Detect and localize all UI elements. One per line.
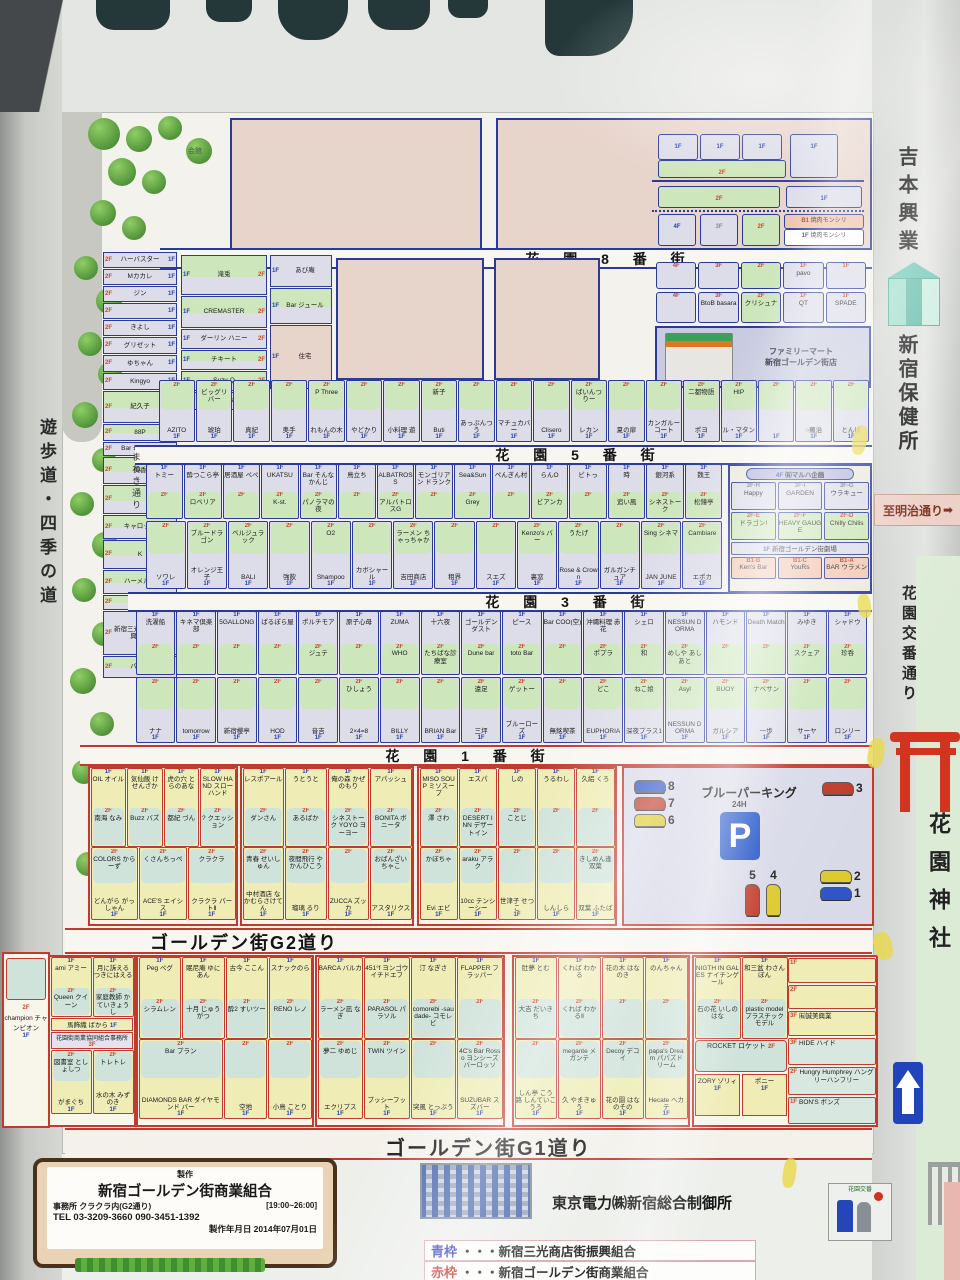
car-icon: 2	[820, 869, 861, 883]
shop-cell: 1FPeg ペグ 2Fシラムレン	[139, 957, 182, 1039]
shop-cell: 1Fエポカ 2FCambiare	[682, 521, 722, 589]
health-center-label: 新宿保健所	[892, 334, 921, 454]
shop-cell: 1Fのんちゃん 2F	[645, 957, 688, 1039]
shop-cell: 2Fグリゼット1F	[103, 337, 177, 354]
shop-cell: 1FZUCCA ズッカ 2F	[328, 847, 370, 920]
shop-cell: 1F瑠璃 るり 2F夜間飛行 やかんひこう	[285, 847, 327, 920]
shop-cell: 1F鳥立ち 2F	[338, 464, 376, 519]
shop-cell: 1F久絽 くろ 2F	[576, 768, 614, 847]
theater-3f-row: 3F-HHappy3F-IGARDEN3F-Gウラキュー	[730, 482, 870, 510]
shop-cell: 1F音吉 2F	[298, 677, 338, 743]
shop-cell: 3F-IGARDEN	[778, 482, 823, 510]
g2b-row1: 1FPeg ペグ 2Fシラムレン 1F眠尼庵 ゆにあん 2F十月 じゅうがつ 1…	[138, 957, 312, 1039]
g2b-row2: 1FDIAMONDS BAR ダイヤモンド バー 2FBar プラン 1F空地 …	[138, 1039, 312, 1119]
g2-block-a: 1Fami アミー 2FQueen クイーン 1F月に訴える つきにはえる 2F…	[48, 955, 136, 1127]
shop-cell: 1F無銘喫茶 2F	[543, 677, 583, 743]
shop-cell: 1F○羅治 2F	[795, 380, 831, 442]
shop-cell: 1Fサーヤ 2F	[787, 677, 827, 743]
shop-cell: 1F滝兎2F	[181, 255, 267, 295]
street-hanazono1-label: 花 園 1 番 街	[330, 746, 610, 766]
shop-cell: 1F一歩 2Fナベサン	[746, 677, 786, 743]
shop-cell: 1Fがまぐち 2F図書室 としょしつ	[51, 1050, 92, 1114]
one-way-arrow-sign	[893, 1062, 923, 1124]
familymart-branch: 新宿ゴールデン街店	[733, 357, 869, 368]
shop-cell: 1Fカボシャール 2F	[352, 521, 392, 589]
shop-cell: 1Fれもんの木 2FP Three	[308, 380, 344, 442]
block1a-row2: 1Fどんがら がっしゃん 2FCOLORS からーず 1FACE'S エイシス …	[90, 847, 236, 920]
bakara-cell: 馬飾織 ばから 1F	[51, 1018, 133, 1031]
legend-row: 青枠・・・新宿三光商店街振興組合	[424, 1240, 756, 1261]
block8-building	[336, 258, 484, 380]
block1b: 1Fレスポアール 2Fダンさん 1Fうとうと 2Fあるばか 1F俺の森 かぜのも…	[240, 766, 414, 926]
familymart-store-icon	[665, 333, 733, 382]
shop-cell: 1FDIAMONDS BAR ダイヤモンド バー 2FBar プラン	[139, 1039, 224, 1119]
maker-date: 製作年月日 2014年07月01日	[53, 1223, 317, 1235]
shop-cell: 1Fアスタリクス 2Fおばんざい ちゃこ	[370, 847, 412, 920]
shop-cell: 1Fスナックのら 2FRENO レノ	[269, 957, 312, 1039]
shop-cell: 1FBILLY 2F	[380, 677, 420, 743]
maruha-cell: 4F ㈲マルハ企画	[746, 468, 854, 480]
shop-cell: 3FBtoB basara	[698, 292, 738, 323]
shop-cell: 3F	[698, 262, 738, 289]
g2-block-c: 1FBARCA バルカ 2Fラーメン凪 なぎ 1F451°f ヨンゴウイチドエフ…	[315, 955, 505, 1127]
shop-cell: 1FHOD 2F	[258, 677, 298, 743]
shop-cell: 1F汀 なぎさ 2Fcomorebi -saudade- コモレビ	[411, 957, 457, 1039]
shop-cell: 1FBar ジュール	[270, 288, 332, 324]
shop-cell: 2Fクリシュナ	[741, 292, 781, 323]
street-g2-label: ゴールデン街G2道り	[150, 929, 338, 955]
shop-cell: 1FBARCA バルカ 2Fラーメン凪 なぎ	[318, 957, 364, 1039]
shop-cell: 1F銀河系 2Fシネストーク	[646, 464, 684, 519]
shop-cell: 1FOIL オイル 2F南海 なみ	[91, 768, 127, 847]
familymart-block: ファミリーマート 新宿ゴールデン街店	[655, 326, 871, 388]
shop-cell: 1FQT	[783, 292, 823, 323]
shop-cell: 1F突風 とっぷう 2F	[411, 1039, 457, 1119]
shop-cell: 1FRose & Crown 2Fうたげ	[558, 521, 598, 589]
shop-cell: 1F奥手 2F	[271, 380, 307, 442]
shop-cell: 1Fあっぷんつう 2F	[458, 380, 494, 442]
shop-cell: 2F-DChilly Chilis	[824, 512, 869, 540]
shop-cell: 1FSUZUBAR スズバー 2F4C's Bar Rosso ヨンシーズバーロ…	[457, 1039, 503, 1119]
shop-cell: 1F気仙飯 けせんざか 2FBuzz バズ	[127, 768, 163, 847]
shop-cell: 1Fダーリン ハニー2F	[181, 329, 267, 349]
shop-cell: 1Ftomorrow 2F	[176, 677, 216, 743]
shop-cell: 1Fキネマ倶楽部 2F	[176, 611, 216, 675]
signboard-logo-fragment	[96, 0, 170, 30]
block3-row1: 1F洗濯船 2F 1Fキネマ倶楽部 2F 1F5GALLONG 2F 1Fぱるぽ…	[135, 611, 868, 675]
shop-cell: 1F居酒屋 ペペ 2F	[223, 464, 261, 519]
shop-cell: 1Fスエズ 2F	[476, 521, 516, 589]
shop-cell: 3F㈲誠美興業	[788, 1011, 876, 1036]
shop-cell: 2F	[788, 985, 876, 1010]
g2-block-e: 1FNIGTH IN GALES ナイチンゲール 2F石の花 いしのはな 1F和…	[692, 955, 878, 1127]
maker-tel: TEL 03-3209-3660 090-3451-1392	[53, 1212, 317, 1223]
shop-cell: 1F5GALLONG 2F	[217, 611, 257, 675]
shop-cell: 1Fエクリプス 2F夢二 ゆめじ	[318, 1039, 364, 1119]
shop-cell: 1FSPADE	[826, 292, 866, 323]
street-hanazono5-label: 花 園 5 番 街	[400, 445, 760, 465]
street-hanazono3-label: 花 園 3 番 街	[390, 592, 750, 612]
shop-cell: 1Fあび庵	[270, 255, 332, 287]
block5-row1: 1Fトミー 2F 1F酔つこら亭 2Fロベリア 1F居酒屋 ペペ 2F 1FUK…	[145, 464, 723, 519]
shop-cell: 1FZUMA 2FWHO	[380, 611, 420, 675]
car-icon: 1	[820, 886, 861, 900]
shop-cell: 1Fガルガンチュア 2F	[600, 521, 640, 589]
maker-title: 製作	[53, 1169, 317, 1180]
shop-cell: 1F琥珀 2Fビッグリバー	[196, 380, 232, 442]
shop-cell: 1Fマチュカバー 2F	[496, 380, 532, 442]
shop-cell: 1F三坪 2F遠足	[461, 677, 501, 743]
to-meiji-dori-label: 至明治通り➡	[874, 494, 960, 526]
shop-cell: 1F沖縄料理 赤花 2Fポプラ	[583, 611, 623, 675]
shop-cell: 1F月に訴える つきにはえる 2F家庭教師 かていきょうし	[93, 957, 134, 1017]
shop-cell: 1Fみゆき 2Fスクェア	[787, 611, 827, 675]
alley-gap	[480, 118, 498, 248]
shop-cell: 3F-Gウラキュー	[824, 482, 869, 510]
shop-cell: 1FAZITO 2F	[159, 380, 195, 442]
shrine-label: 花園神社	[922, 812, 954, 964]
shop-cell: 1F	[788, 958, 876, 983]
torii-icon	[890, 732, 960, 812]
legend-row: 赤枠・・・新宿ゴールデン街商業組合	[424, 1261, 756, 1280]
row-north-of-5: 1FAZITO 2F 1F琥珀 2Fビッグリバー 1F真紀 2F 1F奥手 2F…	[158, 380, 870, 442]
shop-cell: 1Fゴールデンダスト 2FDune bar	[461, 611, 501, 675]
g2-edge-column: 2Fchampion チャンピオン1F	[2, 952, 50, 1128]
koban-lamp-icon	[874, 1192, 883, 1201]
shop-cell: 1FBRIAN Bar 2F	[421, 677, 461, 743]
shop-cell: 1F眠尼庵 ゆにあん 2F十月 じゅうがつ	[182, 957, 225, 1039]
g2c-row2: 1Fエクリプス 2F夢二 ゆめじ 1Fプッシーフット 2FTWIN ツイン 1F…	[317, 1039, 503, 1119]
legend: 青枠・・・新宿三光商店街振興組合 赤枠・・・新宿ゴールデン街商業組合	[424, 1240, 756, 1280]
shop-cell: 1F原子心母 2F	[339, 611, 379, 675]
g2d-row2: 1Fしん亭 こう路 しんていこうろ 2F 1F久 やまきゅう 2Fmegante…	[514, 1039, 688, 1119]
block1a-row1: 1FOIL オイル 2F南海 なみ 1F気仙飯 けせんざか 2FBuzz バズ …	[90, 768, 236, 847]
tepco-building-icon	[420, 1163, 532, 1219]
maker-office: 事務所 クラクラ内(G2通り)	[53, 1201, 151, 1212]
shop-cell: 1Fうるわし 2F	[537, 768, 575, 847]
shop-cell: 1Fビトっ 2F	[569, 464, 607, 519]
shop-cell: 1Fブルーローズ 2Fゲットー	[502, 677, 542, 743]
yoshimoto-label: 吉本興業	[892, 146, 921, 258]
g2-block-b: 1FPeg ペグ 2Fシラムレン 1F眠尼庵 ゆにあん 2F十月 じゅうがつ 1…	[136, 955, 314, 1127]
shop-cell: 1F俺の森 かぜのもり 2Fシネストーク YOYO ヨーヨー	[328, 768, 370, 847]
parking-cars-bottomright: 21	[820, 866, 861, 903]
shop-cell: 1FFLAPPER フラッパー 2F	[457, 957, 503, 1039]
shop-cell: 1FButi 2F新子	[421, 380, 457, 442]
parking-cars-topright: 3	[822, 778, 863, 798]
shop-cell: 1Fプッシーフット 2FTWIN ツイン	[364, 1039, 410, 1119]
block8-building2	[494, 258, 600, 380]
block1b-row2: 1F中村酒店 なかむらさけてん 2F青春 せいしゅん 1F瑠璃 るり 2F夜間飛…	[242, 847, 412, 920]
block8r-lower: 4F3FBtoB basara2Fクリシュナ1FQT1FSPADE	[655, 292, 867, 323]
shop-cell: 1Fしん亭 こう路 しんていこうろ 2F	[515, 1039, 558, 1119]
shop-cell: 1FEvi エビ 2Fかぼちゃ	[420, 847, 458, 920]
shop-cell: 1F小料理 遊 2F	[383, 380, 419, 442]
shop-cell: 1FALBATROSS 2FアルバトロスG	[377, 464, 415, 519]
shop-cell: 1F古今 ここん 2F酔2 すいツー	[226, 957, 269, 1039]
shop-cell: 1Fチキート2F	[181, 350, 267, 370]
shop-cell: 1Fソワレ 2F	[146, 521, 186, 589]
zory-cell: ZORY ゾリィ1F	[695, 1074, 740, 1116]
shop-cell: 1F双葉 ふたば 2Fきしめん逢 双葉	[576, 847, 614, 920]
shop-cell: 3FHIDE ハイド	[788, 1038, 876, 1065]
shop-cell: 1Fポルチモア 2Fジュテ	[298, 611, 338, 675]
shop-cell: 1F肚夢 とむ 2F大吉 だいきち	[515, 957, 558, 1039]
shop-cell: 1Fシェロ 2F和	[624, 611, 664, 675]
shop-cell: 1FSLOW HAND スローハンド 2F? クエッション	[200, 768, 236, 847]
shop-cell: 1F洗濯船 2F	[136, 611, 176, 675]
block8-mid-col2: 1Fあび庵 1FBar ジュール 1F住宅	[270, 255, 332, 390]
promenade-label: 遊歩道・四季の道	[34, 418, 59, 610]
shop-cell: B1-ABAR ウラメン	[824, 557, 869, 579]
theater-b1-row: B1-BKen's BarB1-CYouRsB1-ABAR ウラメン	[730, 557, 870, 579]
block8r-upper: 4F3F2F1Fpavo1F	[655, 262, 867, 289]
shop-cell: 1F裏窓 2FKenzo's バー	[517, 521, 557, 589]
shop-cell: 1FShampoo 2FO2	[311, 521, 351, 589]
parking-title: ブルーパーキング	[684, 784, 814, 801]
g2e-row1: 1FNIGTH IN GALES ナイチンゲール 2F石の花 いしのはな 1F和…	[694, 957, 788, 1039]
shop-cell: 1Fうとうと 2Fあるばか	[285, 768, 327, 847]
shop-cell: 1Fアパッシュ 2FBONITA ボニータ	[370, 768, 412, 847]
shop-cell: 2Fきよし1F	[103, 320, 177, 336]
golden-gai-theater-building: 4F ㈲マルハ企画 3F-HHappy3F-IGARDEN3F-Gウラキュー 2…	[728, 464, 872, 593]
familymart-name: ファミリーマート	[733, 346, 869, 357]
shop-cell: 1F花の木 はなのき 2F	[602, 957, 645, 1039]
frame-corner	[0, 0, 96, 112]
golden-gai-map-photo: 遊歩道・四季の道 会館 1F 1F 1F 1F 2F 2F 1F 4F 3F 2…	[0, 0, 960, 1280]
maneki-street-label: まねき通り	[130, 452, 143, 512]
g2c-row1: 1FBARCA バルカ 2Fラーメン凪 なぎ 1F451°f ヨンゴウイチドエフ…	[317, 957, 503, 1039]
shop-cell: 2FHungry Humphrey ハングリーハンフリー	[788, 1067, 876, 1094]
shop-cell: 1Fピース 2Ftoto Bar	[502, 611, 542, 675]
shop-cell: 1F真紀 2F	[233, 380, 269, 442]
shop-cell: 2F1F	[103, 303, 177, 319]
pony-cell: ポニー1F	[742, 1074, 787, 1116]
shop-cell: 2Fジン1F	[103, 286, 177, 302]
grass-decoration	[75, 1258, 265, 1272]
signboard-logo-fragment	[368, 0, 430, 30]
shop-cell: 2FMカカレ1F	[103, 269, 177, 285]
shop-cell: 1F空地 2F	[224, 1039, 267, 1119]
shop-cell: 1FCREMASTER2F	[181, 296, 267, 328]
shop-cell: 1Fモンゴリアン ドランク 2F	[415, 464, 453, 519]
shop-cell: 1F	[826, 262, 866, 289]
street-g1-label: ゴールデン街G1道り	[385, 1132, 592, 1161]
shop-cell: 1Fカンガルーコート 2F	[646, 380, 682, 442]
shop-cell: 1FJAN JUNE 2FSing シネマ	[641, 521, 681, 589]
shop-cell: 1FBON'S ボンズ	[788, 1097, 876, 1124]
block5-row2: 1Fソワレ 2F 1Fオレンジ王子 2Fブルードラゴン 1FBALI 2Fベルジ…	[145, 521, 723, 589]
g2e-right-upper: 1F2F3F㈲誠美興業	[788, 957, 876, 1037]
g2a-row1: 1Fami アミー 2FQueen クイーン 1F月に訴える つきにはえる 2F…	[50, 957, 134, 1017]
shop-cell: 4F	[656, 292, 696, 323]
yakiniku-b1: 焼肉モンシリ	[811, 218, 847, 224]
shop-cell: 1Fクラクラ パートⅡ 2Fクラクラ	[188, 847, 236, 920]
shop-cell: 1FNESSUN DORMA 2FAsyl	[665, 677, 705, 743]
shop-cell: 2F	[741, 262, 781, 289]
shop-cell: 1FACE'S エイシス 2Fくさんちっぺ	[139, 847, 187, 920]
shop-cell: 1F 2F	[758, 380, 794, 442]
shop-cell: 1Fガルシア 2FBUOY	[706, 677, 746, 743]
parking-p-sign: P	[720, 812, 760, 860]
shop-cell: 1F深夜プラス1 2Fねこ娘	[624, 677, 664, 743]
shop-cell: 1Fpavo	[783, 262, 823, 289]
shop-cell: 1F2×4=8 2Fひしょう	[339, 677, 379, 743]
block1c: 1FMISO SOUP ミソスープ 2F澤 さわ 1Fエスパ 2FDESERT …	[417, 766, 617, 926]
shop-cell: 1Fトミー 2F	[146, 464, 184, 519]
shop-cell: 3F-HHappy	[731, 482, 776, 510]
shop-cell: 1FDeath Match 2F	[746, 611, 786, 675]
signboard-logo-fragment	[206, 0, 252, 22]
shop-cell: 1Fエスパ 2FDESERT INN デザートイン	[459, 768, 497, 847]
block1a: 1FOIL オイル 2F南海 なみ 1F気仙飯 けせんざか 2FBuzz バズ …	[88, 766, 238, 926]
maker-name: 新宿ゴールデン街商業組合	[53, 1180, 317, 1201]
shop-cell: 1FNESSUN DORMA 2Fめしや あしあと	[665, 611, 705, 675]
shop-cell: 1F時 2F追い風	[608, 464, 646, 519]
shop-cell: 1F世津子 せつこ 2F	[498, 847, 536, 920]
shop-cell: 1F10cc テンシーシー 2Faraku アラク	[459, 847, 497, 920]
hall-label: 会館	[188, 146, 202, 156]
block1b-row1: 1Fレスポアール 2Fダンさん 1Fうとうと 2Fあるばか 1F俺の森 かぜのも…	[242, 768, 412, 847]
shop-cell: B1-BKen's Bar	[731, 557, 776, 579]
shop-cell: 1Fしんしら 2F	[537, 847, 575, 920]
block1c-row1: 1FMISO SOUP ミソスープ 2F澤 さわ 1Fエスパ 2FDESERT …	[419, 768, 615, 847]
parking-cars-left: 876	[634, 776, 675, 830]
shop-cell: 1Fポヨ 2F二都物語	[683, 380, 719, 442]
edge-strip	[944, 1182, 960, 1280]
shop-cell: 1Fル・マタン 2FHIP	[721, 380, 757, 442]
maker-sign: 製作 新宿ゴールデン街商業組合 事務所 クラクラ内(G2通り) [19:00~2…	[33, 1158, 337, 1268]
shop-cell: 1F中村酒店 なかむらさけてん 2F青春 せいしゅん	[243, 847, 285, 920]
shop-cell: 1Fどんがら がっしゃん 2FCOLORS からーず	[91, 847, 139, 920]
car-icon: 5	[745, 868, 760, 916]
shop-cell: 2Fハーバスター1F	[103, 252, 177, 268]
shop-cell: 1F451°f ヨンゴウイチドエフ 2FPARASOL パラソル	[364, 957, 410, 1039]
tepco-label: 東京電力㈱新宿総合制御所	[552, 1192, 802, 1213]
shop-cell: 4F	[656, 262, 696, 289]
block1c-row2: 1FEvi エビ 2Fかぼちゃ 1F10cc テンシーシー 2Faraku アラ…	[419, 847, 615, 920]
car-icon: 3	[822, 781, 863, 795]
shop-cell: 2Fゆちゃん1F	[103, 355, 177, 372]
g2e-right-lower: 3FHIDE ハイド2FHungry Humphrey ハングリーハンフリー1F…	[788, 1037, 876, 1125]
blue-parking-block: ブルーパーキング 24H P 876 3 54 21	[622, 766, 874, 926]
g2d-row1: 1F肚夢 とむ 2F大吉 だいきち 1Fくれば わかる 2Fくれば わかるⅡ 1…	[514, 957, 688, 1039]
shop-cell: 1Fしの 2Fことじ	[498, 768, 536, 847]
shop-cell: 1FBar そんなかんじ 2Fパノラマの夜	[300, 464, 338, 519]
shop-cell: 1F久 やまきゅう 2Fmegante メガンテ	[558, 1039, 601, 1119]
shop-cell: 1Fami アミー 2FQueen クイーン	[51, 957, 92, 1017]
shop-cell: 1F虎の穴 とらのあな 2F都紀 づん	[164, 768, 200, 847]
shop-cell: 1Fくれば わかる 2Fくれば わかるⅡ	[558, 957, 601, 1039]
shop-cell: 1F強飲 2F	[269, 521, 309, 589]
car-icon: 4	[766, 868, 781, 916]
car-icon: 6	[634, 813, 675, 827]
shop-cell: 1Fオレンジ王子 2Fブルードラゴン	[187, 521, 227, 589]
shop-cell: 1FUKATSU 2FK-st.	[261, 464, 299, 519]
association-office-cell: 花園街商業協同組合事務所 3F	[51, 1032, 133, 1050]
shop-cell: 1F魏王 2F松鐘亭	[685, 464, 723, 519]
parking-hours: 24H	[732, 800, 747, 809]
theater-1f: 1F 新宿ゴールデン街劇場	[731, 542, 869, 555]
shop-cell: 1F新宿櫻亭 2F	[217, 677, 257, 743]
shop-cell: 1FBALI 2Fベルジュラック	[228, 521, 268, 589]
shop-cell: 1F小鳥 ことり 2F	[268, 1039, 311, 1119]
theater-2f-row: 2F-Eドラゴン!2F-FHEAVY GAUGE2F-DChilly Chili…	[730, 512, 870, 540]
shop-cell: 1F十六夜 2Fたちばな診療室	[421, 611, 461, 675]
shop-cell: 1Fやどかり 2F	[346, 380, 382, 442]
shop-cell: 1FEUPHORIA 2Fどこ	[583, 677, 623, 743]
g2a-row2: 1Fがまぐち 2F図書室 としょしつ 1F水の木 みずのき 2Fトレトレ	[50, 1050, 134, 1114]
shop-cell: 2F-FHEAVY GAUGE	[778, 512, 823, 540]
shop-cell: 1F吉田商店 2Fラーメン ちゃっちゃか	[393, 521, 433, 589]
shop-cell: 1F和三盆 わさんぼん 2Fplastic model プラスチックモデル	[742, 957, 788, 1039]
shop-cell: 2F-Eドラゴン!	[731, 512, 776, 540]
koban-label: 花園交番	[829, 1184, 891, 1193]
yakiniku-1f: 焼肉モンシリ	[810, 233, 846, 239]
shop-cell: 1FらんO 2Fビアンカ	[531, 464, 569, 519]
signboard-logo-fragment	[448, 0, 488, 18]
health-center-building-icon	[888, 262, 940, 326]
shop-cell: 1Fぱるぽら屋 2F	[258, 611, 298, 675]
shop-cell: 1FHecate ヘカテ 2Fpapa's Dream パパズドリーム	[645, 1039, 688, 1119]
shop-cell: 1F租界 2F	[434, 521, 474, 589]
shop-cell: 1Fハモンド 2F	[706, 611, 746, 675]
car-icon: 8	[634, 779, 675, 793]
shop-cell: champion チャンピオン	[5, 1015, 48, 1032]
shop-cell: 1Fナナ 2F	[136, 677, 176, 743]
shop-cell: 1Fぺんぎん村 2F	[492, 464, 530, 519]
shop-cell: 1F花の園 はなのその 2FDecoy デコイ	[602, 1039, 645, 1119]
shop-cell: B1-CYouRs	[778, 557, 823, 579]
shop-cell: 1F夏の扉 2F	[608, 380, 644, 442]
car-icon: 7	[634, 796, 675, 810]
shop-cell: 1F水の木 みずのき 2Fトレトレ	[93, 1050, 134, 1114]
shop-cell: 1F酔つこら亭 2Fロベリア	[184, 464, 222, 519]
koban-icon: 花園交番	[828, 1183, 892, 1241]
rocket-cell: ROCKET ロケット 2F	[695, 1040, 787, 1072]
block3-row2: 1Fナナ 2F 1Ftomorrow 2F 1F新宿櫻亭 2F 1FHOD 2F…	[135, 677, 868, 743]
shop-cell: 1Fシャドウ 2F珍呑	[828, 611, 868, 675]
shop-cell: 1FMISO SOUP ミソスープ 2F澤 さわ	[420, 768, 458, 847]
shop-cell: 1Fレスポアール 2Fダンさん	[243, 768, 285, 847]
shop-cell: 1FClisero 2F	[533, 380, 569, 442]
shop-cell: 1FBar COO(空) 2F	[543, 611, 583, 675]
maker-hours: [19:00~26:00]	[266, 1201, 317, 1212]
g2-block-d: 1F肚夢 とむ 2F大吉 だいきち 1Fくれば わかる 2Fくれば わかるⅡ 1…	[512, 955, 690, 1127]
shop-cell: 1FNIGTH IN GALES ナイチンゲール 2F石の花 いしのはな	[695, 957, 741, 1039]
shop-cell: 1Fレカン 2Fばいんつりー	[571, 380, 607, 442]
shop-cell: 1Fロンリー 2F	[828, 677, 868, 743]
visitor-figure-icon	[857, 1202, 871, 1232]
police-officer-icon	[837, 1200, 853, 1232]
shop-cell: 1FSea&Sun 2FGrey	[454, 464, 492, 519]
parking-cars-middle: 54	[742, 868, 784, 916]
